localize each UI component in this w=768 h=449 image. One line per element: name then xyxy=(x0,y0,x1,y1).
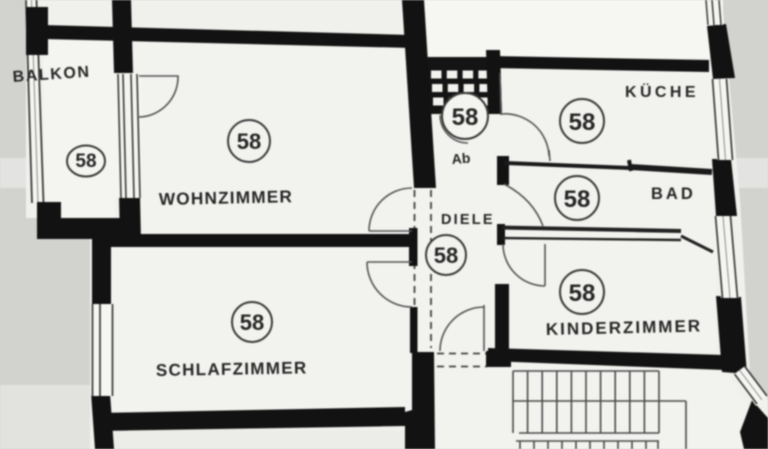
svg-text:KINDERZIMMER: KINDERZIMMER xyxy=(546,316,703,339)
svg-text:WOHNZIMMER: WOHNZIMMER xyxy=(159,186,294,209)
svg-text:BAD: BAD xyxy=(651,185,696,203)
svg-text:SCHLAFZIMMER: SCHLAFZIMMER xyxy=(156,358,308,380)
svg-text:58: 58 xyxy=(569,109,596,136)
svg-text:58: 58 xyxy=(434,243,458,268)
svg-text:DIELE: DIELE xyxy=(441,212,495,228)
svg-text:58: 58 xyxy=(452,104,479,131)
svg-text:58: 58 xyxy=(237,129,261,154)
svg-text:KÜCHE: KÜCHE xyxy=(625,82,699,101)
svg-text:58: 58 xyxy=(240,310,264,335)
svg-text:58: 58 xyxy=(75,151,96,172)
svg-text:58: 58 xyxy=(564,186,591,213)
svg-text:Ab: Ab xyxy=(451,150,471,167)
svg-text:58: 58 xyxy=(569,280,596,307)
